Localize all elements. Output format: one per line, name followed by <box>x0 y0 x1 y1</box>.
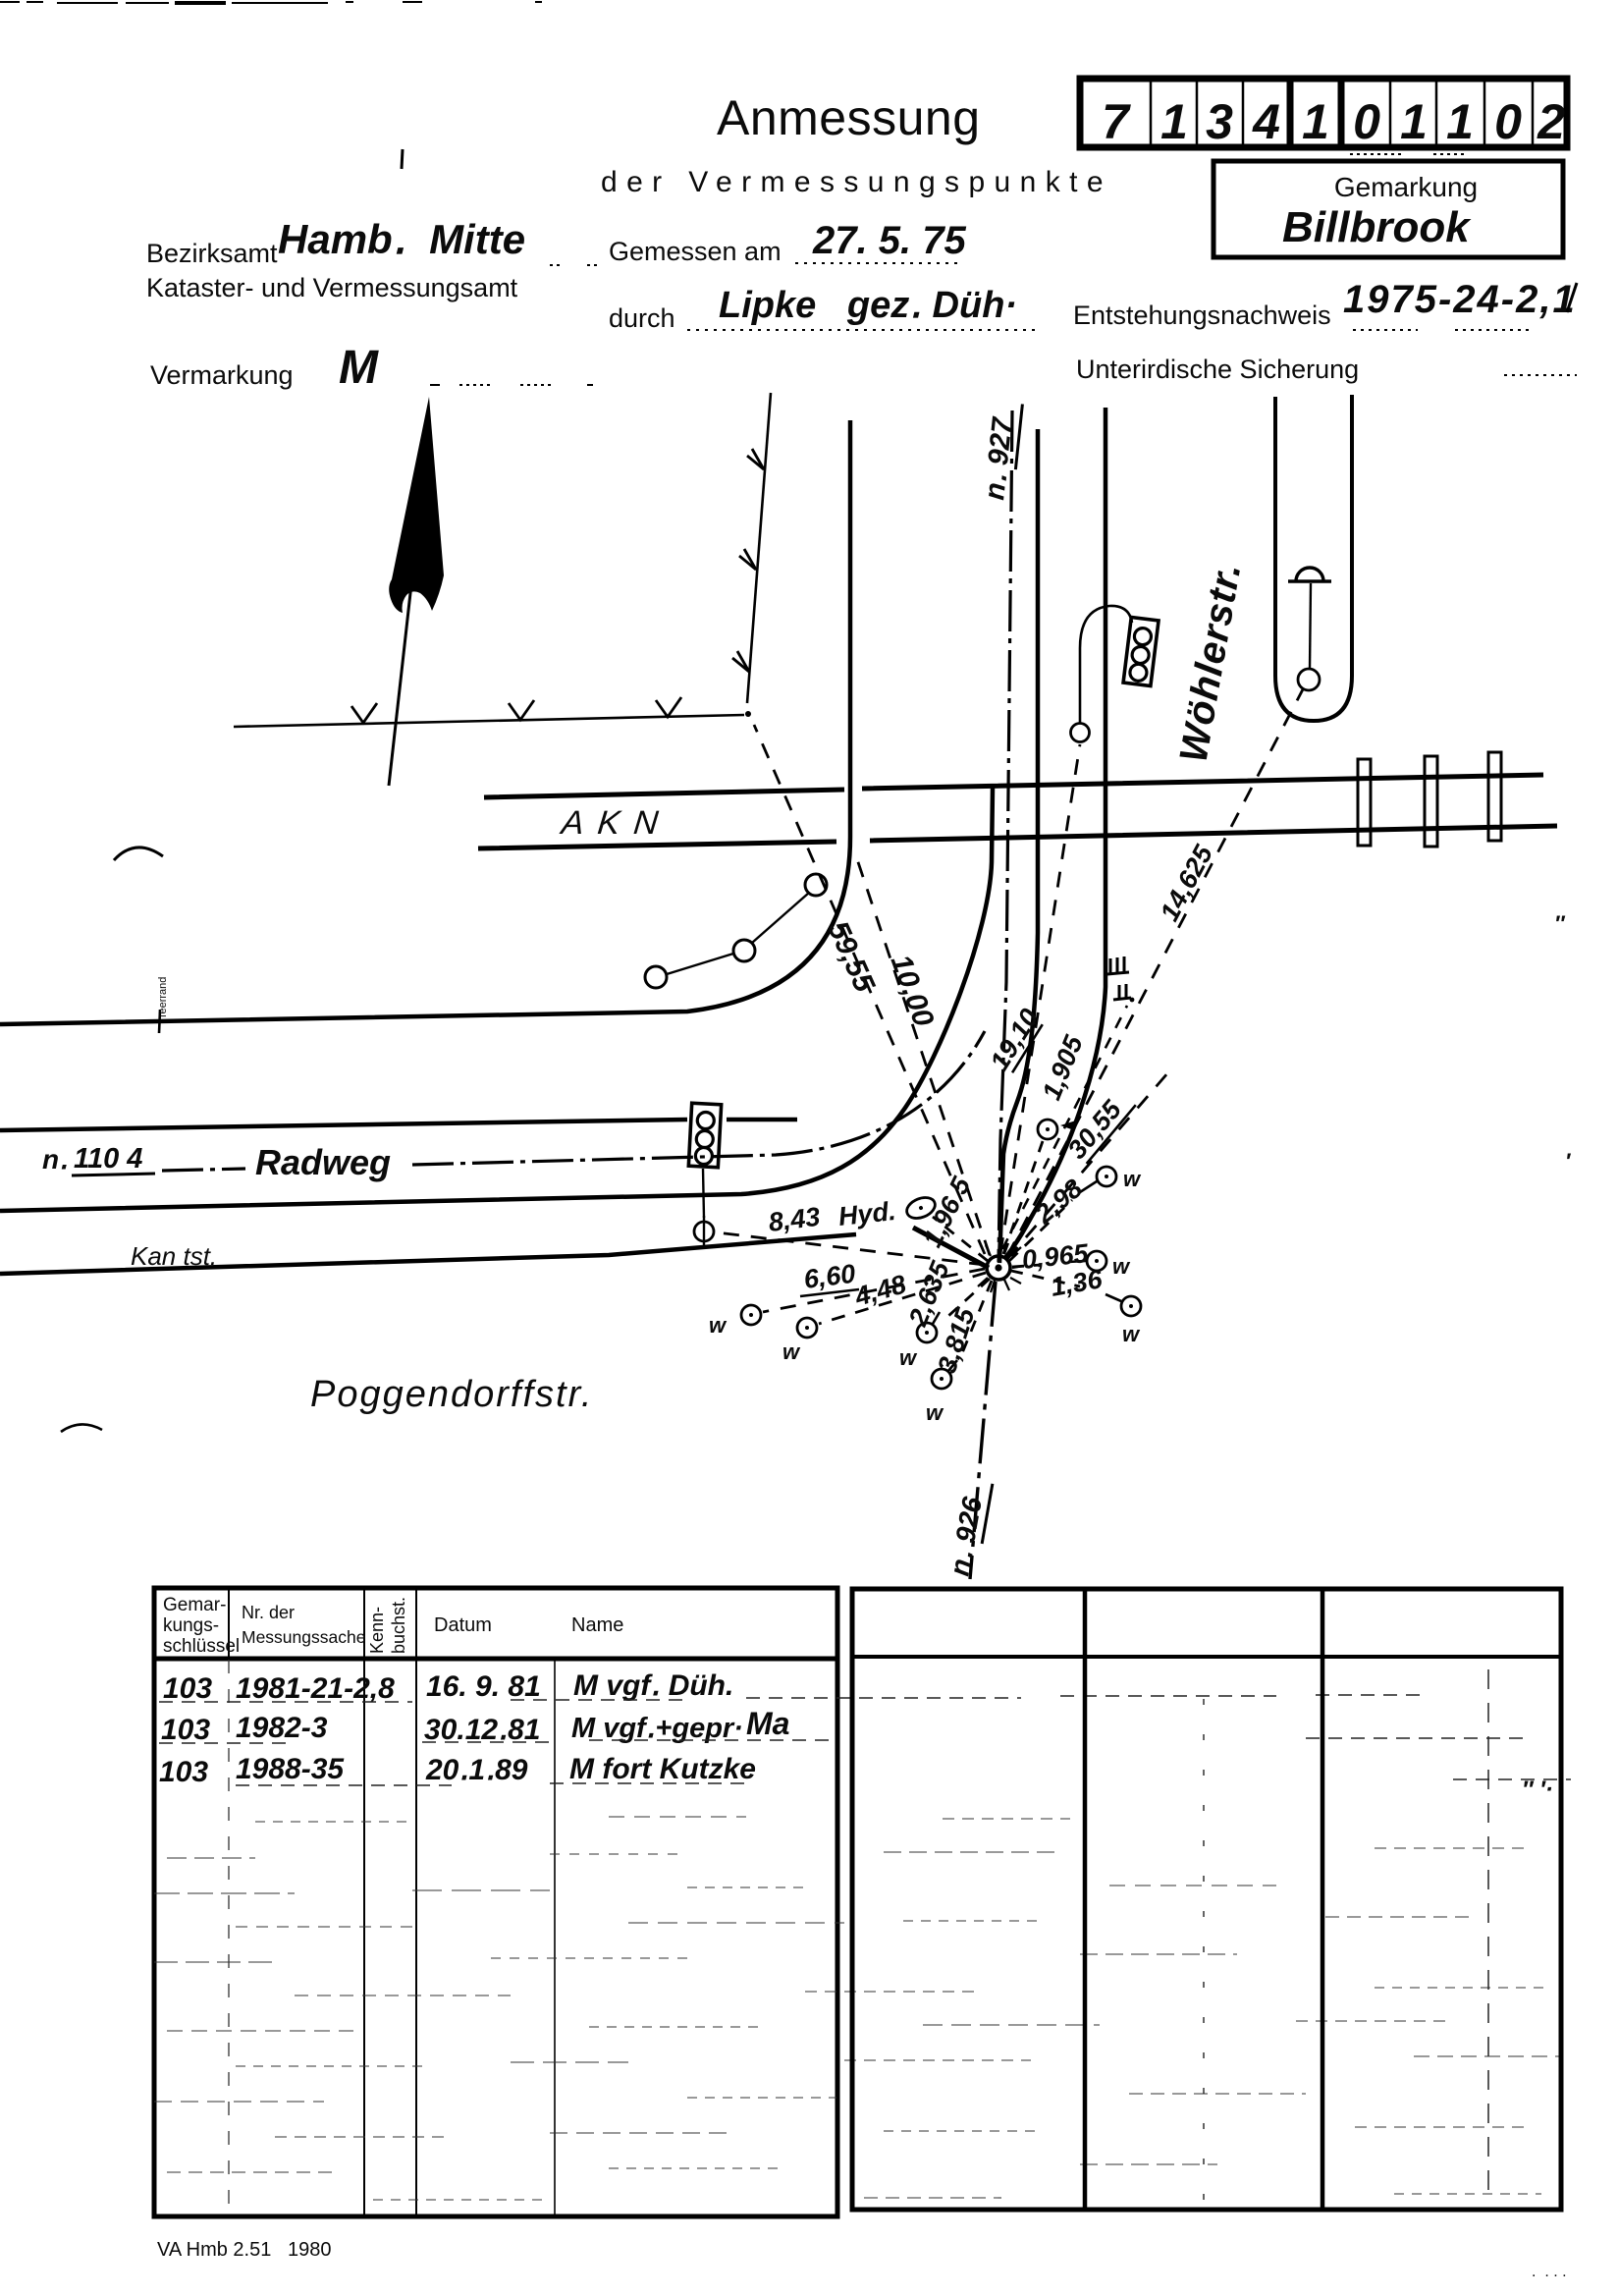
svg-text:27. 5. 75: 27. 5. 75 <box>812 219 966 262</box>
svg-text:Hyd.: Hyd. <box>836 1196 896 1231</box>
svg-text:Unterirdische Sicherung: Unterirdische Sicherung <box>1076 355 1359 384</box>
svg-text:1981-21-2,8: 1981-21-2,8 <box>236 1672 395 1705</box>
svg-text:7: 7 <box>1102 94 1131 149</box>
svg-text:. . . .: . . . . <box>1532 2264 1567 2280</box>
svg-text:w: w <box>782 1339 801 1364</box>
svg-text:30.12․81: 30.12․81 <box>424 1714 540 1746</box>
svg-text:schlüssel: schlüssel <box>163 1636 240 1657</box>
svg-text:4: 4 <box>1252 94 1280 149</box>
svg-text:w: w <box>1122 1322 1141 1346</box>
svg-text:Datum: Datum <box>434 1614 492 1636</box>
svg-text:buchst.: buchst. <box>389 1597 408 1654</box>
svg-text:Anmessung: Anmessung <box>717 90 981 145</box>
svg-text:Gemarkung: Gemarkung <box>1334 172 1478 202</box>
svg-text:w: w <box>1123 1167 1142 1191</box>
svg-text:110 4: 110 4 <box>74 1143 142 1175</box>
svg-text:103: 103 <box>159 1756 208 1788</box>
svg-text:M vgf․+gepr·: M vgf․+gepr· <box>571 1713 743 1744</box>
svg-text:kungs-: kungs- <box>163 1615 219 1636</box>
svg-text:Radweg: Radweg <box>255 1142 391 1182</box>
svg-text:8,43: 8,43 <box>767 1202 822 1237</box>
svg-text:Gemar-: Gemar- <box>163 1595 226 1615</box>
svg-text:Kenn-: Kenn- <box>367 1607 387 1654</box>
svg-text:Messungssache: Messungssache <box>242 1627 365 1647</box>
svg-text:w: w <box>1112 1254 1131 1279</box>
svg-text:′′: ′′ <box>1554 911 1566 936</box>
svg-text:0: 0 <box>1353 94 1380 149</box>
svg-text:Vermarkung: Vermarkung <box>150 360 294 390</box>
svg-text:Lipke gez․ Düh·: Lipke gez․ Düh· <box>719 285 1017 326</box>
svg-text:103: 103 <box>161 1714 210 1746</box>
svg-text:Hamb․ Mitte: Hamb․ Mitte <box>278 216 525 262</box>
svg-text:n․: n․ <box>42 1144 68 1175</box>
svg-text:AKN: AKN <box>558 804 674 842</box>
svg-text:1975-24-2,1: 1975-24-2,1 <box>1343 278 1577 321</box>
svg-text:M: M <box>339 342 379 394</box>
svg-text:w: w <box>899 1345 918 1370</box>
svg-text:′′ ′·: ′′ ′· <box>1522 1777 1553 1803</box>
svg-text:1: 1 <box>1302 94 1329 149</box>
svg-text:1982-3: 1982-3 <box>236 1712 328 1744</box>
svg-text:Ma: Ma <box>746 1706 789 1741</box>
svg-text:0: 0 <box>1494 94 1522 149</box>
svg-text:M fort Kutzke: M fort Kutzke <box>569 1753 756 1785</box>
svg-text:Gemessen am: Gemessen am <box>609 237 782 266</box>
svg-text:Teerrand: Teerrand <box>157 977 169 1019</box>
svg-text:20․1․89: 20․1․89 <box>425 1754 528 1786</box>
svg-text:3: 3 <box>1206 94 1233 149</box>
svg-text:2: 2 <box>1537 94 1565 149</box>
svg-text:1988-35: 1988-35 <box>236 1753 345 1785</box>
svg-text:Poggendorffstr.: Poggendorffstr. <box>310 1374 593 1415</box>
svg-text:Kan tst.: Kan tst. <box>131 1241 217 1271</box>
svg-text:w: w <box>926 1400 944 1425</box>
svg-text:1: 1 <box>1446 94 1474 149</box>
svg-text:1: 1 <box>1160 94 1188 149</box>
svg-text:M vgf․ Düh.: M vgf․ Düh. <box>573 1669 733 1702</box>
svg-text:16. 9. 81: 16. 9. 81 <box>426 1670 541 1703</box>
svg-text:103: 103 <box>163 1672 212 1705</box>
svg-text:Nr. der: Nr. der <box>242 1603 295 1622</box>
svg-text:der Vermessungspunkte: der Vermessungspunkte <box>601 166 1112 198</box>
svg-text:Kataster- und Vermessungsamt: Kataster- und Vermessungsamt <box>146 273 518 302</box>
svg-text:Billbrook: Billbrook <box>1282 203 1472 251</box>
svg-text:durch: durch <box>609 303 675 333</box>
svg-text:w: w <box>709 1313 728 1338</box>
svg-text:VA Hmb 2.51 1980: VA Hmb 2.51 1980 <box>157 2239 332 2261</box>
svg-text:Entstehungsnachweis: Entstehungsnachweis <box>1073 301 1331 330</box>
svg-text:Bezirksamt: Bezirksamt <box>146 239 278 268</box>
svg-text:6,60: 6,60 <box>802 1259 857 1294</box>
svg-text:Name: Name <box>571 1614 623 1636</box>
svg-text:1: 1 <box>1400 94 1428 149</box>
